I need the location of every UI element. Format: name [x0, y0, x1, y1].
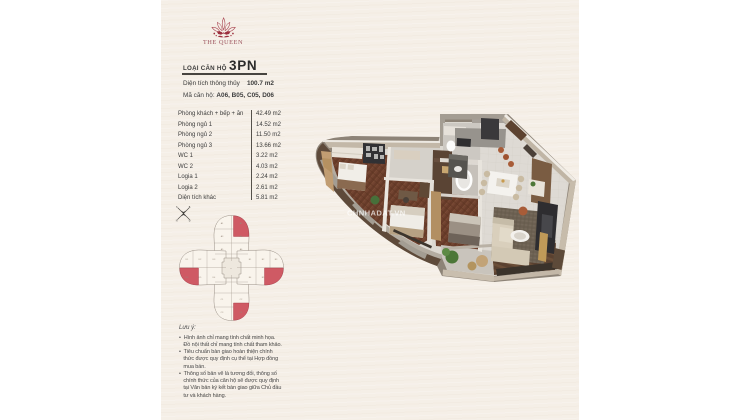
svg-text:CHNHADAT.VN: CHNHADAT.VN [347, 209, 406, 218]
